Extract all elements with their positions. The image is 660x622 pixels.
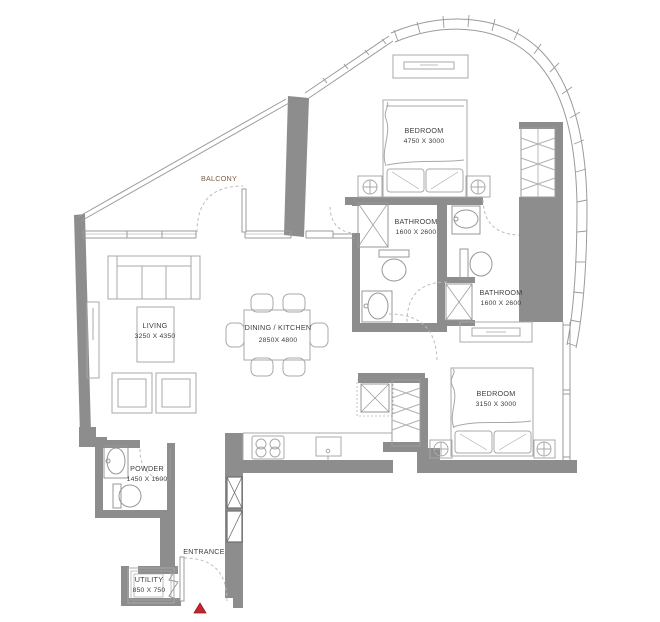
shaft-box-upper <box>227 477 242 508</box>
wall-shower2-left <box>437 283 445 326</box>
wall-openings <box>225 598 233 608</box>
label-bathroom1-name: BATHROOM <box>395 217 438 226</box>
wall-shower2-bottom <box>437 320 475 326</box>
wall-powder-left <box>95 440 103 518</box>
glazed-facade <box>78 15 587 348</box>
shaft-hall <box>357 380 393 416</box>
label-bathroom1-dims: 1600 X 2600 <box>396 229 437 236</box>
kitchen-sink <box>316 437 341 461</box>
door-arc-bedroom1-lobby <box>330 207 353 233</box>
wall-balcony-pillar <box>284 96 309 237</box>
sofa <box>108 256 200 299</box>
shower-bath1 <box>358 203 388 247</box>
label-powder-dims: 1450 X 1600 <box>127 476 168 483</box>
toilet-bath1 <box>379 250 409 281</box>
wardrobe-bedroom1 <box>521 128 555 197</box>
living-window <box>83 231 355 238</box>
label-bathroom2-name: BATHROOM <box>480 288 523 297</box>
label-entrance: ENTRANCE <box>183 547 225 556</box>
label-bedroom2-name: BEDROOM <box>477 389 516 398</box>
nightstand-bed1-right <box>466 176 490 197</box>
shaft-box-lower <box>227 511 242 542</box>
door-arc-balcony <box>197 186 243 232</box>
wall-wardrobe1-right <box>555 128 563 197</box>
wall-bedroom2-bottom <box>417 460 577 473</box>
label-dining-dims: 2850X 4800 <box>259 337 298 344</box>
floor-plan: BALCONY BEDROOM 4750 X 3000 BATHROOM 160… <box>0 0 660 622</box>
entrance-marker <box>194 603 206 613</box>
bedroom2-window <box>563 322 570 460</box>
wall-utility-bottom <box>121 598 181 606</box>
armchair-left <box>112 373 152 413</box>
wall-kitchen-bottom <box>238 460 393 473</box>
stove <box>252 436 284 459</box>
wall-core-right <box>519 197 563 322</box>
diagonal-glazing <box>305 36 393 98</box>
ac-unit-top <box>393 55 468 78</box>
door-swings <box>140 186 519 601</box>
door-leaf-balcony <box>242 189 246 232</box>
wall-baths-bottom <box>352 323 447 332</box>
label-bedroom1-name: BEDROOM <box>405 126 444 135</box>
sink-powder <box>104 446 128 478</box>
sink-bath2 <box>452 206 480 234</box>
room-labels: BALCONY BEDROOM 4750 X 3000 BATHROOM 160… <box>127 126 523 594</box>
wall-bedroom1-bottom <box>345 197 483 205</box>
toilet-bath2 <box>460 249 492 279</box>
wall-shower2-top <box>437 277 475 283</box>
toilet-powder <box>113 484 141 508</box>
dining-chairs <box>226 294 328 376</box>
label-bedroom2-dims: 3150 X 3000 <box>476 401 517 408</box>
label-bedroom1-dims: 4750 X 3000 <box>404 138 445 145</box>
label-dining-name: DINING / KITCHEN <box>245 323 312 332</box>
balcony-railing <box>78 99 289 221</box>
label-living-dims: 3250 X 4350 <box>135 333 176 340</box>
wardrobe-hall <box>392 380 420 446</box>
label-bathroom2-dims: 1600 X 2600 <box>481 300 522 307</box>
door-arc-bedroom1 <box>483 200 519 235</box>
wall-utility-top <box>138 566 178 574</box>
wall-powder-right <box>167 443 175 518</box>
label-utility-name: UTILITY <box>135 575 164 584</box>
sink-bath1 <box>362 291 392 322</box>
armchair-right <box>156 373 196 413</box>
nightstand-bed2-right <box>534 440 555 458</box>
door-arc-entrance <box>184 558 227 601</box>
label-balcony: BALCONY <box>201 174 237 183</box>
bed-bedroom1 <box>383 100 467 197</box>
wall-powder-bottom <box>95 510 175 518</box>
wall-bath-divider <box>437 197 447 283</box>
nightstand-bed1-left <box>358 176 382 197</box>
wall-bath1-left <box>352 233 360 332</box>
floor-plan-drawing: BALCONY BEDROOM 4750 X 3000 BATHROOM 160… <box>0 0 660 622</box>
label-utility-dims: 850 X 750 <box>133 587 166 594</box>
dining-table <box>244 310 310 360</box>
walls <box>74 96 577 608</box>
wall-left <box>74 214 91 436</box>
wall-hall-left <box>160 518 175 570</box>
bed-bedroom2 <box>451 368 533 456</box>
shower-bath2 <box>446 284 472 320</box>
label-living-name: LIVING <box>142 321 167 330</box>
wall-wardrobe2-right <box>420 378 428 448</box>
label-powder-name: POWDER <box>130 464 164 473</box>
door-leaf-entrance <box>180 557 184 601</box>
door-arc-bedroom2 <box>389 314 437 362</box>
